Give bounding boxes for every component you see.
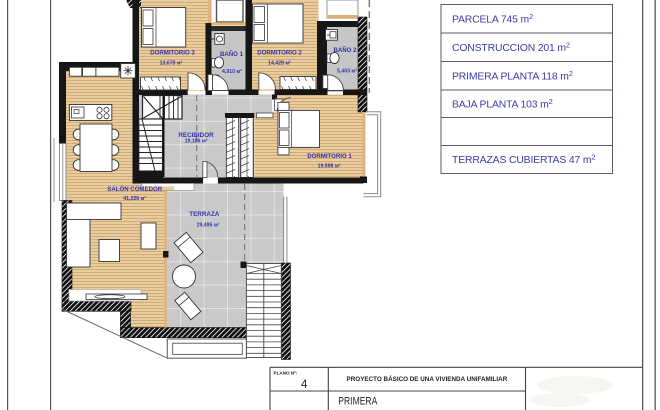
svg-text:4: 4 [301,379,308,391]
svg-text:19,186 м²: 19,186 м² [185,139,208,145]
svg-text:PRIMERA: PRIMERA [338,396,378,408]
svg-text:5,403 м²: 5,403 м² [337,68,357,74]
svg-text:TERRAZA: TERRAZA [189,211,220,218]
svg-text:BAJA PLANTA 103 m2: BAJA PLANTA 103 m2 [452,97,553,111]
svg-text:29,495 м²: 29,495 м² [197,223,220,229]
svg-text:PRIMERA PLANTA 118 m2: PRIMERA PLANTA 118 m2 [452,69,573,83]
svg-text:DORMITORIO 1: DORMITORIO 1 [307,153,352,160]
svg-text:DORMITORIO 3: DORMITORIO 3 [150,50,195,57]
svg-text:13,678 м²: 13,678 м² [160,61,183,67]
svg-text:CONSTRUCCION 201 m2: CONSTRUCCION 201 m2 [452,41,570,55]
svg-text:SALÓN COMEDOR: SALÓN COMEDOR [107,185,162,193]
svg-text:41,226 м²: 41,226 м² [123,196,146,202]
svg-text:BAÑO 2: BAÑO 2 [333,47,357,54]
svg-text:PARCELA 745 m2: PARCELA 745 m2 [452,12,533,26]
svg-text:BAÑO 1: BAÑO 1 [220,51,244,58]
svg-text:PROYECTO BÁSICO DE UNA VIVIEND: PROYECTO BÁSICO DE UNA VIVIENDA UNIFAMIL… [347,374,508,383]
svg-text:14,428 м²: 14,428 м² [268,61,291,67]
svg-text:19,598 м²: 19,598 м² [318,163,341,169]
svg-text:4,910 м²: 4,910 м² [222,69,242,75]
svg-text:PLANO Nº:: PLANO Nº: [274,371,298,376]
svg-text:DORMITORIO 2: DORMITORIO 2 [257,50,302,57]
svg-text:TERRAZAS CUBIERTAS 47 m2: TERRAZAS CUBIERTAS 47 m2 [452,153,595,167]
